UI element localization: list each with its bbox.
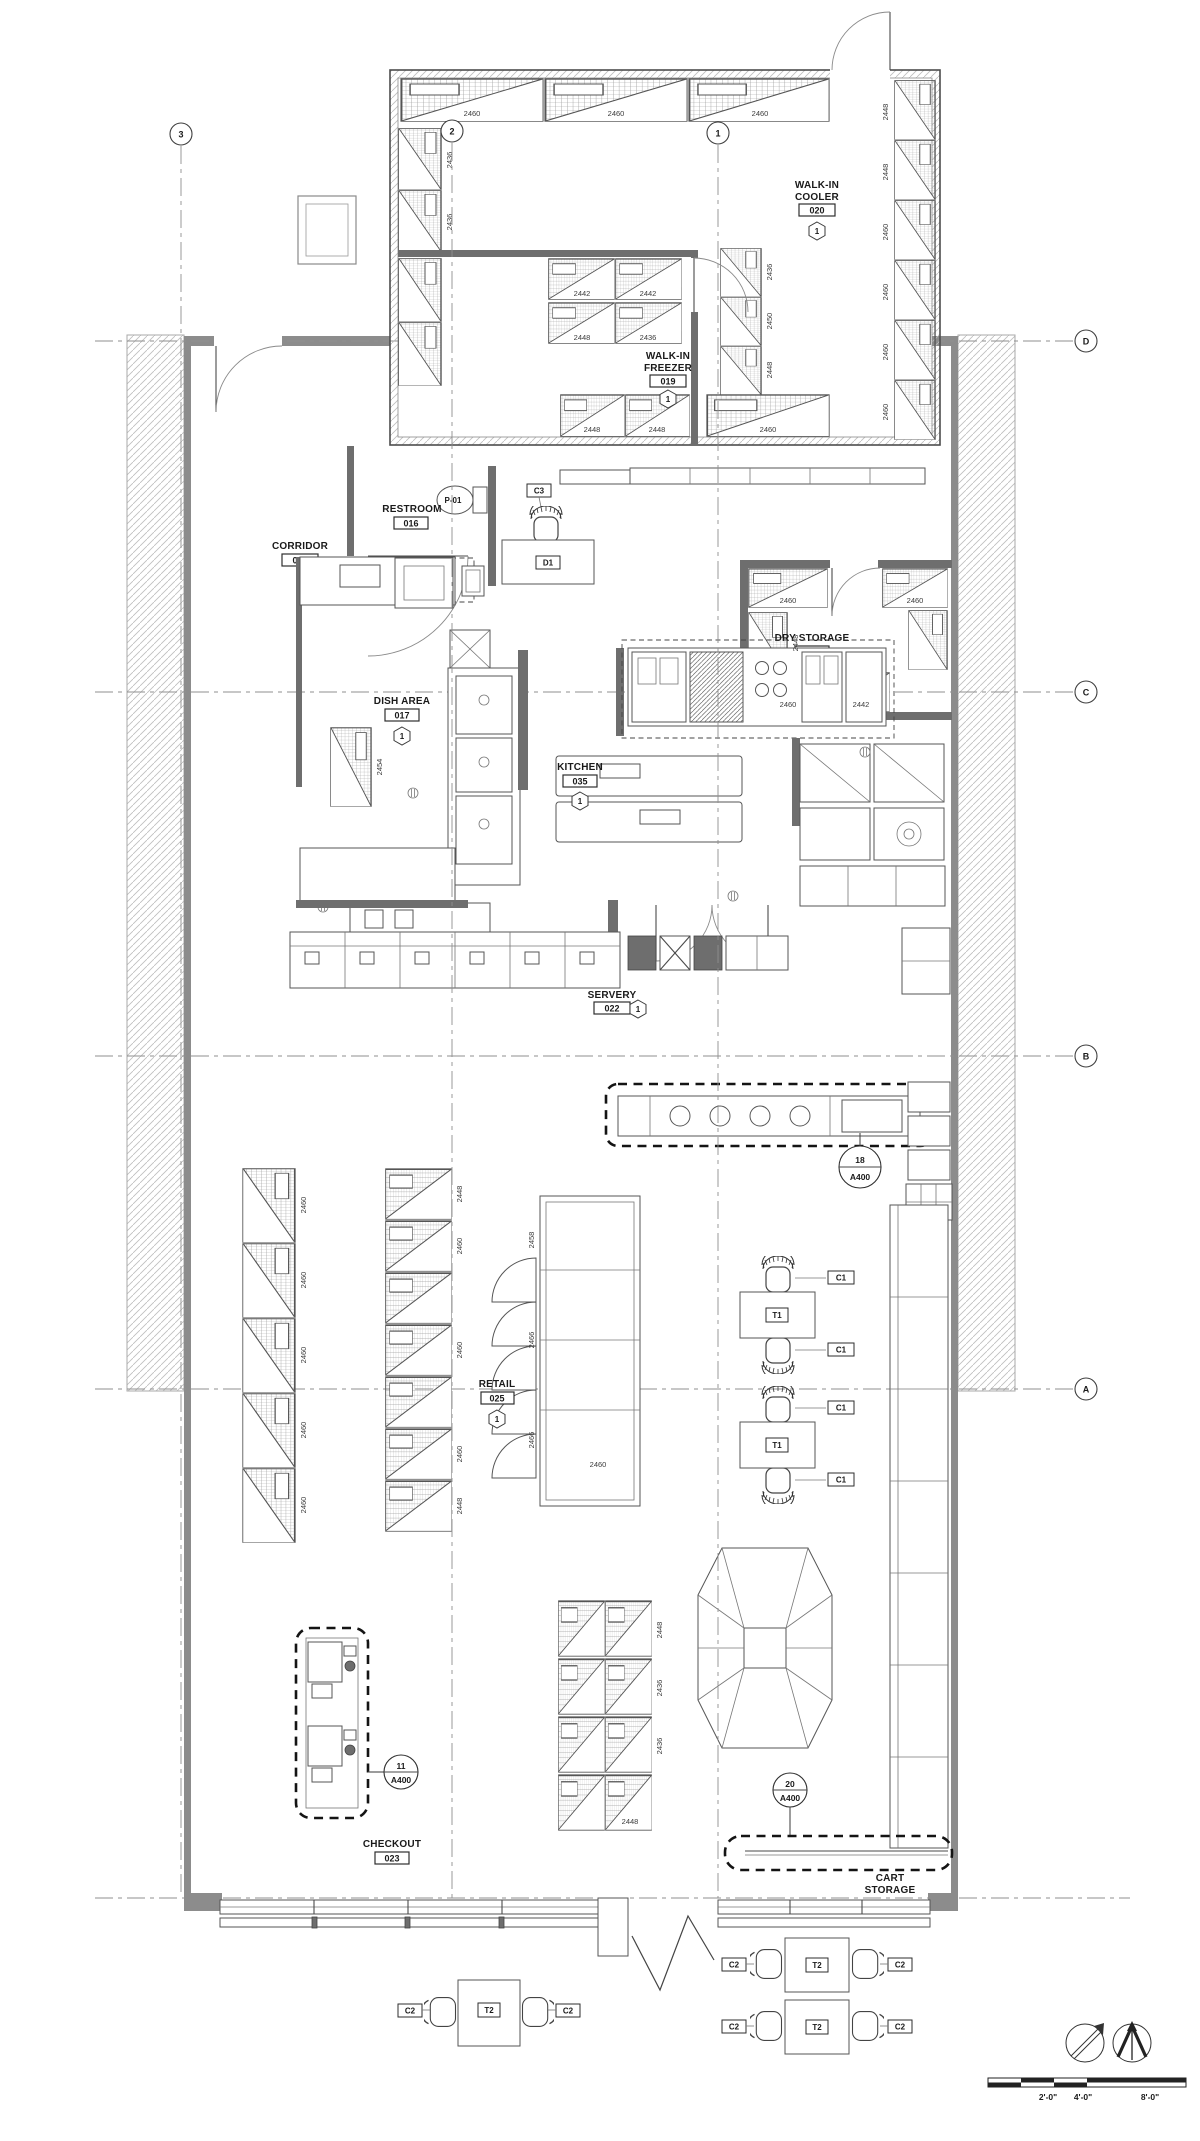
shelf-unit (721, 346, 761, 394)
grid-bubble-label: 2 (449, 127, 454, 137)
dish-area-room: DISH AREA 017 1 (296, 557, 528, 941)
restroom-number: 016 (403, 519, 418, 529)
storefront-pier-left (184, 1893, 222, 1911)
shelf-unit (243, 1469, 295, 1543)
grid-bubble-label: A (1083, 1385, 1090, 1395)
shelf-unit (399, 259, 441, 322)
cooler-label-line2: COOLER (795, 192, 840, 203)
shelf-dim: 2460 (455, 1238, 464, 1255)
checkout-label: CHECKOUT (363, 1839, 421, 1850)
shelf-dim: 2460 (881, 344, 890, 361)
shelf-dim: 2448 (584, 425, 601, 434)
chair-tag: C1 (836, 1476, 847, 1485)
shelf-dim: 2460 (881, 404, 890, 421)
shelf-unit (895, 321, 935, 380)
callout-sheet-number: A400 (391, 1775, 412, 1785)
shelf-unit (895, 81, 935, 140)
shelf-dim: 2448 (455, 1498, 464, 1515)
shelf-unit (721, 248, 761, 296)
display-table-grid (558, 1601, 651, 1829)
shelf-dim: 2448 (881, 104, 890, 121)
office-area: C3 D1 (502, 470, 630, 584)
shelf-unit (605, 1601, 651, 1655)
grid-bubble-label: 1 (715, 129, 720, 139)
fan-display (492, 1258, 536, 1302)
kitchen-wall-counter (630, 468, 925, 484)
callout-detail-number: 20 (785, 1779, 795, 1789)
checkout-number: 023 (384, 1854, 399, 1864)
dry-wall-top-left (740, 560, 830, 568)
outdoor-set-left: T2 C2 C2 (398, 1980, 580, 2046)
char-grill (690, 652, 743, 722)
outdoor-chair (421, 1998, 456, 2027)
shelf-dim: 2448 (791, 635, 800, 652)
counter-end-unit (842, 1100, 902, 1132)
sink-basin (456, 738, 512, 792)
fryer (802, 652, 842, 722)
chair-tag: C2 (895, 1961, 906, 1970)
kitchen-label: KITCHEN (557, 762, 603, 773)
dining-chair (762, 1250, 794, 1292)
shelf-dim: 2466 (527, 1432, 536, 1449)
door-swing-arc (216, 346, 282, 412)
prep-board (640, 810, 680, 824)
condiment-stand (908, 1116, 950, 1146)
dry-storage-label: DRY STORAGE (775, 633, 850, 644)
freezer-number: 019 (660, 377, 675, 387)
exterior-wall-left (184, 336, 191, 1893)
cart-storage-label-line1: CART (876, 1873, 905, 1884)
burner (756, 662, 769, 675)
shelf-dim: 2454 (375, 759, 384, 776)
waste-bin (395, 910, 413, 928)
shelf-dim: 2460 (590, 1460, 607, 1469)
floor-plan-sheet: P-01 P-02 C3 D1 CORRIDOR 024 RESTROOM 01… (0, 0, 1200, 2141)
scale-label-8ft: 8'-0" (1141, 2092, 1159, 2102)
scale-bar: 2'-0" 4'-0" 8'-0" (988, 2078, 1186, 2102)
cooler-number: 020 (809, 206, 824, 216)
shelf-dim: 2448 (622, 1817, 639, 1826)
dining-chair (762, 1338, 794, 1380)
callout-sheet-number: A400 (850, 1172, 871, 1182)
shelf-unit (386, 1169, 452, 1219)
dish-area-number: 017 (394, 711, 409, 721)
shelf-dim: 2448 (655, 1622, 664, 1639)
mullion-cap (499, 1917, 504, 1928)
toilet-tank (473, 487, 487, 513)
outdoor-chair (523, 1998, 558, 2027)
mullion-cap (405, 1917, 410, 1928)
shelf-unit (721, 297, 761, 345)
octagon-center (744, 1628, 786, 1668)
shelf-unit (386, 1377, 452, 1427)
servery-label: SERVERY (588, 990, 637, 1001)
burner (774, 684, 787, 697)
site-band-right (958, 335, 1015, 1391)
register-stand (308, 1642, 342, 1682)
callout-detail-number: 18 (855, 1155, 865, 1165)
office-chair (530, 500, 562, 542)
shelf-unit (386, 1481, 452, 1531)
shelf-unit (331, 728, 371, 806)
outdoor-set-right-1: T2 C2 C2 (722, 1938, 912, 1992)
mixer-stand (874, 808, 944, 860)
register-screen (344, 1730, 356, 1740)
chair-tag: C2 (729, 2023, 740, 2032)
scale-label-4ft: 4'-0" (1074, 2092, 1092, 2102)
storefront-pier-right (928, 1893, 958, 1911)
chair-tag: C2 (405, 2007, 416, 2016)
shelf-dim: 2436 (445, 152, 454, 169)
shelf-dim: 2460 (299, 1197, 308, 1214)
kitchen-wall-stub-right (792, 738, 800, 826)
wall-display-cases (890, 1205, 948, 1848)
shelf-dim: 2460 (881, 284, 890, 301)
shelf-unit (399, 191, 441, 252)
floor-drain-icon (732, 892, 735, 900)
counter-well (305, 952, 319, 964)
shelf-dim: 2442 (640, 289, 657, 298)
outdoor-seating: T2 C2 C2 T2 C2 C2 T2 C2 C2 (398, 1938, 912, 2054)
desk-tag: D1 (543, 559, 554, 568)
corridor-restroom-wall (347, 446, 354, 556)
shelf-dim: 2458 (527, 1232, 536, 1249)
shelf-dim: 2436 (655, 1738, 664, 1755)
shelf-unit (243, 1394, 295, 1468)
corridor-label: CORRIDOR (272, 541, 329, 552)
storefront-sill-right (718, 1918, 930, 1927)
shelf-dim: 2436 (655, 1680, 664, 1697)
cooler-finish-tag: 1 (815, 227, 820, 236)
exterior-wall-right (951, 336, 958, 1893)
burner (756, 684, 769, 697)
grid-bubble-label: C (1083, 688, 1090, 698)
restroom-office-wall (488, 466, 496, 586)
shelf-dim: 2460 (608, 109, 625, 118)
table-tag: T1 (772, 1441, 782, 1450)
freezer-finish-tag: 1 (666, 395, 671, 404)
door-opening (830, 63, 890, 80)
checkout-station: 11 A400 CHECKOUT 023 (296, 1628, 421, 1864)
shelf-unit (399, 323, 441, 386)
cooler-label-line1: WALK-IN (795, 180, 839, 191)
kitchen-room: KITCHEN 035 1 (318, 468, 945, 912)
shelf-unit (558, 1659, 604, 1713)
scale-bar-segment (1087, 2078, 1186, 2083)
shelf-unit (909, 611, 947, 670)
dining-chair (762, 1468, 794, 1510)
kitchen-finish-tag: 1 (578, 797, 583, 806)
shelf-dim: 2460 (455, 1446, 464, 1463)
floor-plan-drawing: P-01 P-02 C3 D1 CORRIDOR 024 RESTROOM 01… (0, 0, 1200, 2141)
equipment-pad-inner (306, 204, 348, 256)
chair-tag: C1 (836, 1274, 847, 1283)
servery-feature-counter: 18 A400 (606, 1084, 932, 1188)
shelf-dim: 2448 (649, 425, 666, 434)
counter-well (415, 952, 429, 964)
shelf-unit (895, 141, 935, 200)
shelf-dim: 2460 (780, 700, 797, 709)
callout-sheet-number: A400 (780, 1793, 801, 1803)
register-screen (344, 1646, 356, 1656)
counter-well (470, 952, 484, 964)
chair-tag: C2 (729, 1961, 740, 1970)
mop-sink-basin (462, 566, 484, 596)
shelf-dim: 2436 (445, 214, 454, 231)
dish-counter-bottom (300, 848, 455, 903)
dish-area-finish-tag: 1 (400, 732, 405, 741)
shelf-dim: 2448 (574, 333, 591, 342)
shelf-dim: 2436 (765, 264, 774, 281)
dry-wall-top-right (878, 560, 952, 568)
scale-label-2ft: 2'-0" (1039, 2092, 1057, 2102)
register-stand (308, 1726, 342, 1766)
hot-well (670, 1106, 690, 1126)
grid-bubble-label: B (1083, 1052, 1090, 1062)
floor-drain-icon (408, 788, 418, 798)
shelf-dim: 2460 (299, 1272, 308, 1289)
office-shelf (560, 470, 630, 484)
scale-bar-segment (988, 2083, 1021, 2088)
kitchen-wall-stub (616, 648, 624, 736)
dining-set-1: T1 C1 C1 (740, 1250, 854, 1380)
griddle (846, 652, 882, 722)
table-tag: T1 (772, 1311, 782, 1320)
shelf-dim: 2448 (881, 164, 890, 181)
dish-wall-mid (518, 650, 528, 790)
shelf-dim: 2448 (765, 362, 774, 379)
shelf-dim: 2466 (527, 1332, 536, 1349)
dish-area-label: DISH AREA (374, 696, 430, 707)
toilet-tag: P-01 (445, 496, 462, 505)
shelf-unit (386, 1273, 452, 1323)
bag-rack (312, 1684, 332, 1698)
cart-storage-label-line2: STORAGE (865, 1885, 916, 1896)
burner (774, 662, 787, 675)
chair-tag: C2 (895, 2023, 906, 2032)
shelf-unit (386, 1429, 452, 1479)
restroom-label: RESTROOM (382, 504, 441, 515)
north-arrows (1066, 2021, 1151, 2062)
dining-set-2: T1 C1 C1 (740, 1380, 854, 1510)
kitchen-number: 035 (572, 777, 587, 787)
freezer-wall-top (398, 250, 698, 257)
freezer-label-line1: WALK-IN (646, 351, 690, 362)
scanner (345, 1661, 355, 1671)
shelf-unit (243, 1244, 295, 1318)
servery-finish-tag: 1 (636, 1005, 641, 1014)
equipment-pad (298, 196, 356, 264)
shelf-unit (386, 1221, 452, 1271)
shelf-dim: 2460 (760, 425, 777, 434)
floor-drain-icon (412, 789, 415, 797)
condiment-stand (908, 1082, 950, 1112)
retail-number: 025 (489, 1394, 504, 1404)
callout-detail-number: 11 (397, 1761, 406, 1771)
counter-well (525, 952, 539, 964)
chair-tag: C2 (563, 2007, 574, 2016)
shelf-unit (895, 201, 935, 260)
scanner (345, 1745, 355, 1755)
outdoor-set-right-2: T2 C2 C2 (722, 2000, 912, 2054)
prep-board (600, 764, 640, 778)
floor-drain-icon (728, 891, 738, 901)
hot-well (710, 1106, 730, 1126)
shelf-unit (895, 381, 935, 440)
freezer-label-line2: FREEZER (644, 363, 693, 374)
shelf-dim: 2460 (907, 596, 924, 605)
condiment-stand (908, 1150, 950, 1180)
dining-chair (762, 1380, 794, 1422)
front-of-store: 11 A400 CHECKOUT 023 20 A400 (296, 1548, 952, 1896)
shelf-unit (386, 1325, 452, 1375)
shelf-unit (558, 1601, 604, 1655)
table-tag: T2 (812, 2023, 822, 2032)
retail-label: RETAIL (479, 1379, 516, 1390)
entrance-folding-door (632, 1916, 714, 1990)
hot-well (790, 1106, 810, 1126)
bag-rack (312, 1768, 332, 1782)
door-opening (214, 334, 282, 348)
shelf-dim: 2448 (455, 1186, 464, 1203)
shelf-unit (243, 1319, 295, 1393)
shelf-dim: 2450 (765, 313, 774, 330)
servery-wall (296, 900, 468, 908)
mullion-cap (312, 1917, 317, 1928)
scale-bar-segment (1054, 2083, 1087, 2088)
kitchen-counter (800, 866, 945, 906)
table-tag: T2 (812, 1961, 822, 1970)
table-tag: T2 (484, 2006, 494, 2015)
shelf-dim: 2460 (881, 224, 890, 241)
shelf-unit (895, 261, 935, 320)
shelf-unit (605, 1717, 651, 1771)
shelf-unit (558, 1775, 604, 1829)
shelf-dim: 2460 (455, 1342, 464, 1359)
shelf-dim: 2442 (853, 700, 870, 709)
toilet-fixture: P-01 (437, 486, 487, 514)
counter-well (360, 952, 374, 964)
chair-tag: C1 (836, 1404, 847, 1413)
shelf-dim: 2436 (640, 333, 657, 342)
shelf-dim: 2460 (780, 596, 797, 605)
shelf-dim: 2460 (464, 109, 481, 118)
shelf-dim: 2442 (574, 289, 591, 298)
servery-number: 022 (604, 1004, 619, 1014)
sink-basin (456, 796, 512, 864)
entrance-jamb (598, 1898, 628, 1956)
dish-sink (340, 565, 380, 587)
shelf-dim: 2460 (299, 1497, 308, 1514)
tag-leader (539, 497, 541, 507)
hot-well (750, 1106, 770, 1126)
waste-bin (365, 910, 383, 928)
shelf-unit (605, 1659, 651, 1713)
door-swing-arc (832, 568, 880, 616)
shelf-dim: 2460 (299, 1422, 308, 1439)
shelf-dim: 2460 (299, 1347, 308, 1364)
office-chair-tag: C3 (534, 487, 545, 496)
beverage-machine (628, 936, 656, 970)
site-band-left (127, 335, 184, 1391)
scale-bar-segment (1021, 2078, 1054, 2083)
chair-tag: C1 (836, 1346, 847, 1355)
retail-finish-tag: 1 (495, 1415, 500, 1424)
shelf-unit (243, 1169, 295, 1243)
work-table (800, 808, 870, 860)
door-swing-arc (832, 12, 890, 70)
shelf-dim: 2460 (752, 109, 769, 118)
shelf-unit (399, 129, 441, 190)
counter-well (580, 952, 594, 964)
grid-bubble-label: 3 (178, 130, 183, 140)
grid-bubble-label: D (1083, 337, 1090, 347)
shelf-unit (558, 1717, 604, 1771)
